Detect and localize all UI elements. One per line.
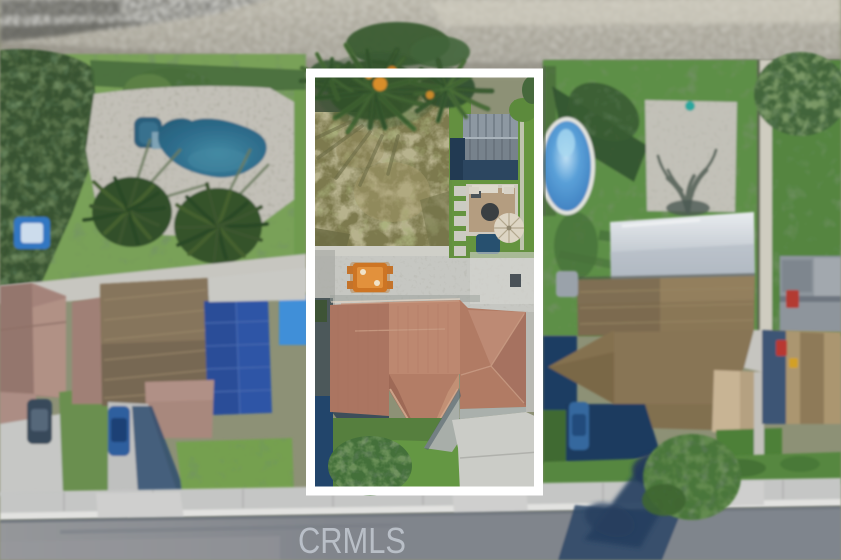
svg-text:CRMLS: CRMLS [298,520,406,560]
